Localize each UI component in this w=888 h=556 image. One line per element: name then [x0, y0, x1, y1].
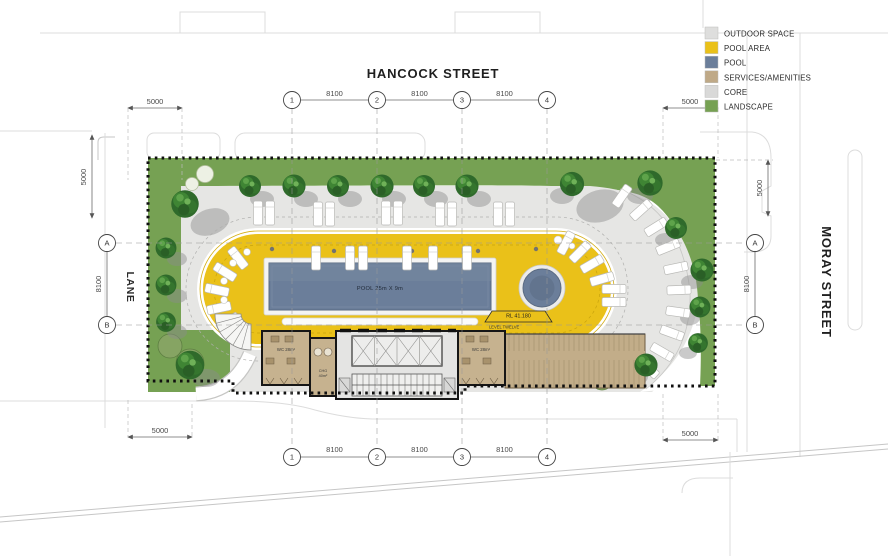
tree: [156, 238, 177, 259]
svg-text:CORE: CORE: [724, 88, 747, 97]
dim-setback-left: 5000: [79, 169, 88, 186]
tree: [176, 351, 205, 380]
legend-swatch-outdoor-space: [705, 27, 718, 39]
dim-bay-top-1: 8100: [326, 89, 343, 98]
legend-item-pool-area: POOL AREA: [705, 42, 771, 54]
tree: [637, 170, 662, 195]
wc-left-label: WC 28m²: [277, 347, 296, 352]
svg-text:SERVICES/AMENITIES: SERVICES/AMENITIES: [724, 73, 811, 82]
lounger: [359, 246, 368, 270]
legend: OUTDOOR SPACE POOL AREA POOL SERVICES/AM…: [705, 27, 811, 112]
lounger: [436, 202, 445, 226]
grid-bubble-col2-top: 2: [369, 92, 386, 109]
svg-text:OUTDOOR SPACE: OUTDOOR SPACE: [724, 30, 794, 39]
svg-text:4: 4: [545, 96, 549, 105]
lounger: [254, 201, 263, 225]
dim-rows-right: 8100: [742, 276, 751, 293]
lounger: [602, 298, 626, 307]
legend-swatch-landscape: [705, 100, 718, 112]
svg-text:1: 1: [290, 96, 294, 105]
site-plan-drawing: POOL 25m X 9m RL 41.180 LEVEL TWELVE: [0, 0, 888, 556]
spa-pool: [519, 265, 565, 311]
lounger: [448, 202, 457, 226]
wc-right-label: WC 28m²: [472, 347, 491, 352]
tree: [370, 174, 393, 197]
dim-bay-bottom-2: 8100: [411, 445, 428, 454]
lounger: [494, 202, 503, 226]
street-label-hancock: HANCOCK STREET: [367, 66, 500, 81]
dim-bay-top-3: 8100: [496, 89, 513, 98]
svg-text:3: 3: [460, 96, 464, 105]
tree: [239, 175, 261, 197]
site-plan-canvas: POOL 25m X 9m RL 41.180 LEVEL TWELVE: [0, 0, 888, 556]
svg-text:B: B: [752, 321, 757, 330]
svg-text:B: B: [104, 321, 109, 330]
lounger: [602, 285, 626, 294]
legend-swatch-core: [705, 85, 718, 97]
tree: [171, 190, 199, 218]
tree: [455, 174, 478, 197]
legend-swatch-pool: [705, 56, 718, 68]
grid-bubble-rowA-right: A: [747, 235, 764, 252]
lounger: [382, 201, 391, 225]
grid-bubble-rowB-left: B: [99, 317, 116, 334]
grid-bubble-rowB-right: B: [747, 317, 764, 334]
tree: [156, 312, 176, 332]
tree: [327, 175, 349, 197]
lounger: [266, 201, 275, 225]
tree: [665, 217, 687, 239]
svg-text:POOL: POOL: [724, 59, 747, 68]
lounger: [312, 246, 321, 270]
tree: [688, 333, 708, 353]
grid-bubble-col2-bottom: 2: [369, 449, 386, 466]
lounger: [463, 246, 472, 270]
tree: [690, 297, 711, 318]
legend-swatch-services: [705, 71, 718, 83]
grid-bubble-rowA-left: A: [99, 235, 116, 252]
legend-item-landscape: LANDSCAPE: [705, 100, 773, 112]
lounger: [314, 202, 323, 226]
chg-label: CHG: [319, 369, 327, 373]
lounger: [429, 246, 438, 270]
dim-bay-bottom-3: 8100: [496, 445, 513, 454]
svg-text:1: 1: [290, 453, 294, 462]
tree: [690, 258, 713, 281]
lounger: [326, 202, 335, 226]
wc-room-left: WC 28m²: [262, 331, 310, 385]
tree: [282, 174, 305, 197]
dim-bay-bottom-1: 8100: [326, 445, 343, 454]
pool-label: POOL 25m X 9m: [357, 286, 403, 292]
grid-bubble-col3-top: 3: [454, 92, 471, 109]
dim-setback-top-left: 5000: [147, 97, 164, 106]
tree: [634, 353, 657, 376]
services-deck: [505, 334, 645, 388]
legend-item-core: CORE: [705, 85, 747, 97]
svg-text:2: 2: [375, 453, 379, 462]
grid-bubble-col4-top: 4: [539, 92, 556, 109]
lounger: [667, 285, 691, 295]
tree: [560, 172, 584, 196]
rl-value: RL 41.180: [506, 314, 531, 320]
wc-room-right: WC 28m²: [458, 331, 505, 385]
svg-text:2: 2: [375, 96, 379, 105]
tree: [156, 275, 177, 296]
svg-text:LANDSCAPE: LANDSCAPE: [724, 103, 773, 112]
pool-bench: [282, 318, 478, 325]
lounger: [506, 202, 515, 226]
dim-rows-left: 8100: [94, 276, 103, 293]
chg-area-label: 40m²: [319, 374, 328, 378]
lap-pool: POOL 25m X 9m: [264, 258, 496, 325]
svg-text:3: 3: [460, 453, 464, 462]
dim-setback-top-right: 5000: [682, 97, 699, 106]
dim-setback-right: 5000: [755, 180, 764, 197]
svg-text:4: 4: [545, 453, 549, 462]
grid-bubble-col4-bottom: 4: [539, 449, 556, 466]
svg-text:A: A: [104, 239, 109, 248]
legend-item-services: SERVICES/AMENITIES: [705, 71, 811, 83]
core: [336, 331, 458, 400]
grid-bubble-col1-bottom: 1: [284, 449, 301, 466]
grid-bubble-col1-top: 1: [284, 92, 301, 109]
legend-swatch-pool-area: [705, 42, 718, 54]
svg-text:A: A: [752, 239, 757, 248]
level-name: LEVEL TWELVE: [489, 325, 519, 330]
dim-bay-top-2: 8100: [411, 89, 428, 98]
chg-room: CHG 40m²: [310, 338, 336, 396]
lounger: [394, 201, 403, 225]
grid-bubble-col3-bottom: 3: [454, 449, 471, 466]
lounger: [403, 246, 412, 270]
tree: [413, 175, 435, 197]
street-label-moray: MORAY STREET: [819, 226, 834, 337]
legend-item-pool: POOL: [705, 56, 747, 68]
lounger: [346, 246, 355, 270]
dim-setback-bottom-left: 5000: [152, 426, 169, 435]
street-label-lane: LANE: [124, 272, 136, 303]
dim-setback-bottom-right: 5000: [682, 429, 699, 438]
svg-text:POOL AREA: POOL AREA: [724, 44, 771, 53]
